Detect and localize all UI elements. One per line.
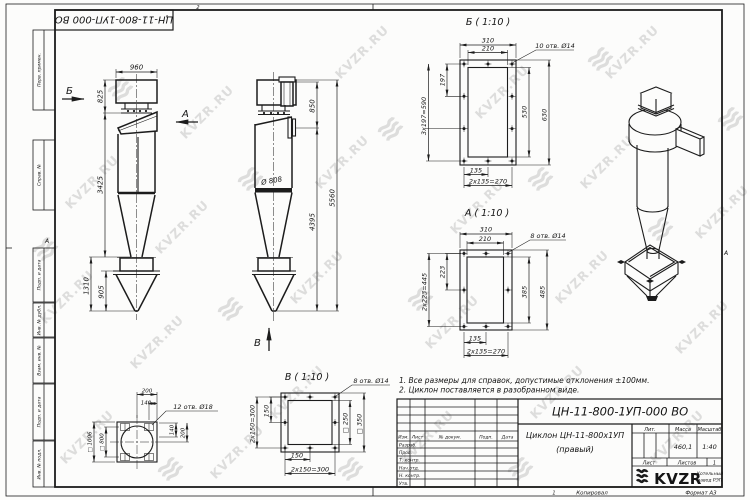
holes-callout: 10 отв. Ø14 (535, 42, 574, 50)
dim-label-diameter: Ø 808 (260, 175, 284, 187)
zone-mark-bottom: 1 (552, 491, 555, 497)
dim-label: 5560 (329, 189, 337, 207)
scale-label: Масштаб (698, 427, 722, 433)
dim-label: 630 (541, 109, 549, 121)
dim-label: 2х223=445 (421, 273, 429, 311)
watermark-text: KVZR.RU (267, 362, 327, 422)
watermark-text: KVZR.RU (332, 22, 392, 82)
dim-label: 960 (130, 64, 144, 72)
note-line-1: 1. Все размеры для справок, допустимые о… (399, 376, 649, 385)
holes-callout: 8 отв. Ø14 (353, 377, 388, 385)
sig-row-label: Разраб. (399, 443, 417, 449)
dim-label: 485 (539, 286, 547, 298)
dim-label: 200 (142, 389, 153, 395)
dim-label: □ 250 (342, 413, 350, 434)
margin-field-label: Инв. № дубл. (37, 305, 43, 336)
holes-callout: 8 отв. Ø14 (530, 232, 565, 240)
margin-field-label: Подп. и дата (37, 259, 43, 290)
dim-label: 140 (141, 401, 152, 407)
drawing-svg: KVZR.RU KVZR.RU KVZR.RU KVZR.RU KVZR.RU … (0, 0, 750, 500)
header-col: Изм. (398, 435, 409, 441)
dim-label: 2х150=300 (291, 466, 329, 474)
lit-label: Лит. (643, 427, 656, 433)
watermark-text: KVZR.RU (37, 267, 97, 327)
notes: 1. Все размеры для справок, допустимые о… (399, 376, 649, 395)
logo-subtext-2: завод РЭП (698, 478, 723, 484)
section-v: В ( 1:10 ) 8 отв. Ø14 150 2х150=300 □ 25… (249, 372, 391, 476)
dim-label: □ 350 (356, 414, 364, 435)
sheets-value: 1 (713, 461, 716, 467)
sheet-label: Лист (642, 461, 657, 467)
dim-label: 150 (263, 405, 271, 417)
section-title: Б ( 1:10 ) (466, 17, 510, 28)
margin-field-label: Подп. и дата (37, 396, 43, 427)
watermark-coil-icon (218, 297, 243, 322)
mass-value: 460,1 (674, 443, 693, 451)
dim-label: 140 (170, 424, 176, 435)
sig-row-label: Т. контр. (399, 458, 420, 464)
part-name-line2: (правый) (556, 445, 594, 454)
margin-field-label: Взам. инв. № (37, 345, 43, 376)
dim-label: 310 (480, 226, 492, 234)
dim-label: 3425 (97, 176, 105, 194)
header-col: Дата (501, 435, 514, 441)
watermark-text: KVZR.RU (127, 312, 187, 372)
scale-value: 1:40 (702, 443, 717, 451)
header-col: Подп. (479, 435, 493, 441)
watermark-text: KVZR.RU (577, 132, 637, 192)
watermark-text: KVZR.RU (692, 182, 750, 242)
watermark-coil-icon (238, 167, 263, 192)
dim-label: 210 (482, 45, 494, 53)
dim-label: 385 (521, 286, 529, 298)
watermark-coil-icon (528, 167, 553, 192)
dim-label: 850 (309, 99, 317, 113)
watermark-coil-icon (378, 117, 403, 142)
dim-label: 135 (469, 335, 481, 343)
dim-label: 135 (470, 167, 482, 175)
logo-text: KVZR (654, 470, 702, 488)
header-col: № докум. (438, 435, 461, 441)
sig-row-label: Н. контр. (399, 473, 421, 479)
watermark-text: KVZR.RU (312, 132, 372, 192)
dim-label: 2х150=300 (249, 405, 257, 443)
watermark-coil-icon (338, 457, 363, 482)
doc-number: ЦН-11-800-1УП-000 ВО (552, 405, 688, 419)
section-title: А ( 1:10 ) (464, 208, 509, 219)
mass-label: Масса (675, 427, 691, 433)
sig-row-label: Утв. (399, 481, 408, 487)
view-arrow-label-b: Б (66, 86, 73, 97)
dim-label: □ 800 (100, 433, 106, 451)
footer-format: Формат А3 (685, 491, 717, 497)
view-arrow-label-v: В (254, 338, 261, 349)
section-title: В ( 1:10 ) (285, 372, 329, 383)
watermark-text: KVZR.RU (62, 152, 122, 212)
header-col: Лист (411, 435, 424, 441)
view-front: Ø 808 850 4395 5560 В (252, 72, 339, 351)
part-name-line1: Циклон ЦН-11-800х1УП (526, 431, 624, 440)
dim-label: 2х135=270 (467, 348, 505, 356)
view-isometric (617, 87, 704, 301)
margin-field-label: Перв. примен. (37, 53, 43, 87)
sig-row-label: Пров. (399, 450, 412, 456)
dim-label: 3х197=590 (420, 97, 428, 135)
dim-label: □ 1006 (88, 431, 94, 452)
dim-label: 150 (291, 452, 303, 460)
top-stamp-doc-number: ЦН-11-800-1УП-000 ВО (55, 14, 174, 25)
dim-label: 825 (97, 89, 105, 103)
watermark-coil-icon (508, 457, 533, 482)
margin-field-label: Инв. № подл. (37, 448, 43, 479)
view-flange: 12 отв. Ø18 200 140 140 200 □ 1006 □ 800 (88, 389, 219, 470)
watermark-text: KVZR.RU (152, 197, 212, 257)
dim-label: 530 (521, 106, 529, 118)
dim-label: 4395 (309, 213, 317, 231)
dim-label: 200 (181, 427, 187, 438)
dim-label: 905 (98, 285, 106, 299)
watermark-text: KVZR.RU (552, 247, 612, 307)
watermark-text: KVZR.RU (602, 22, 662, 82)
dim-label: 2х135=270 (469, 178, 507, 186)
sig-row-label: Нач.отд. (399, 466, 419, 472)
margin-field-label: Справ. № (37, 164, 43, 186)
zone-mark-top: 2 (196, 5, 199, 11)
watermark-coil-icon (158, 457, 183, 482)
view-arrow-label-a: А (181, 109, 189, 120)
sheets-label: Листов (677, 461, 697, 467)
dim-label: 310 (482, 37, 494, 45)
dim-label: 1310 (83, 277, 91, 295)
dim-label: 210 (479, 235, 491, 243)
logo-subtext-1: Котельный (697, 471, 723, 477)
dim-label: 223 (439, 266, 447, 278)
dim-label: 197 (439, 73, 447, 86)
note-line-2: 2. Циклон поставляется в разобранном вид… (399, 386, 579, 395)
drawing-sheet: KVZR.RU KVZR.RU KVZR.RU KVZR.RU KVZR.RU … (0, 0, 750, 500)
footer-copied: Копировал (576, 491, 608, 497)
holes-callout: 12 отв. Ø18 (173, 403, 212, 411)
watermark-coil-icon (648, 217, 673, 242)
logo-coil-icon (637, 470, 648, 482)
zone-mark-right: А (723, 250, 728, 257)
zone-mark-left: А (44, 238, 49, 245)
watermark-text: KVZR.RU (207, 422, 267, 482)
